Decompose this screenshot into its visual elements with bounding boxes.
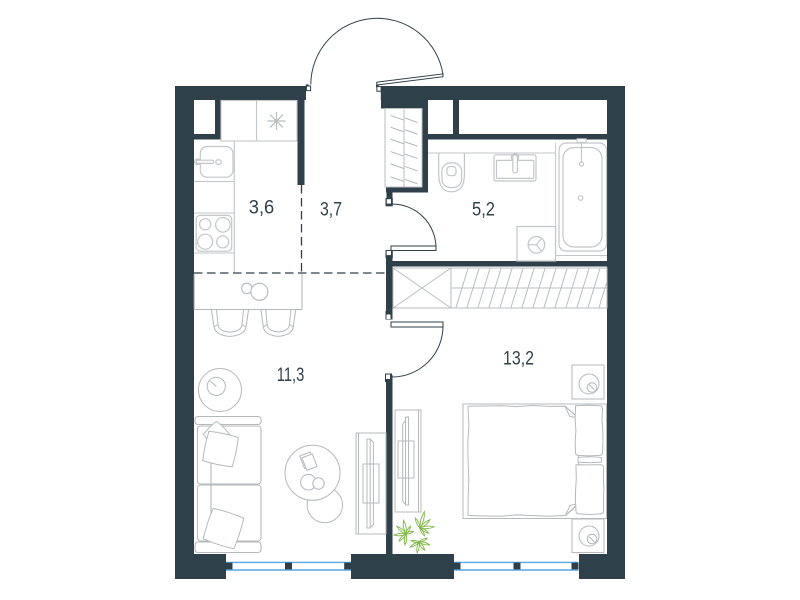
- svg-text:3,6: 3,6: [249, 198, 275, 219]
- svg-text:13,2: 13,2: [503, 349, 534, 370]
- svg-text:3,7: 3,7: [320, 200, 342, 221]
- svg-text:11,3: 11,3: [277, 365, 305, 386]
- svg-text:5,2: 5,2: [472, 200, 495, 221]
